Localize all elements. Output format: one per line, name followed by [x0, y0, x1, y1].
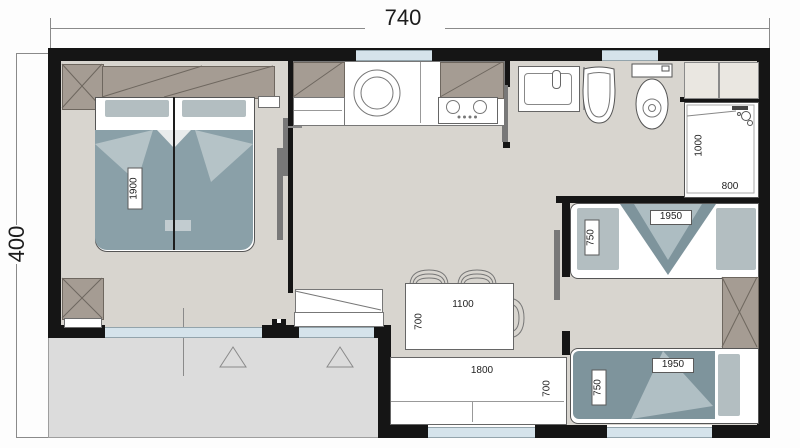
sliding-door-bedroom-kids — [554, 230, 560, 300]
bedroom-master-window — [105, 327, 262, 338]
bedroom-kids-window — [607, 427, 712, 438]
table-length-label: 1100 — [441, 298, 485, 311]
dimension-ext-top-left — [50, 18, 51, 48]
wall-left — [48, 61, 61, 338]
bed-master-pillow-left — [105, 100, 169, 117]
bed-kids-bottom-pillow — [718, 354, 740, 416]
bed-master-pillow-right — [182, 100, 246, 117]
terrace-edge-line — [183, 308, 184, 376]
bidet-icon — [580, 64, 618, 126]
kitchen-window — [356, 50, 432, 61]
bed-kids-top-pillow-right — [716, 208, 756, 270]
wardrobe-hatch-icon — [102, 66, 273, 97]
kitchen-cabinet-fronts — [293, 97, 345, 126]
table-depth-label: 700 — [413, 305, 426, 339]
bed-master-sheet — [165, 220, 191, 231]
counter-divider — [420, 62, 421, 123]
bathroom-cabinet-2 — [719, 62, 759, 99]
hob-burners-icon — [438, 97, 496, 122]
sofa-depth-label: 700 — [541, 372, 554, 406]
cabinet-hatch-icon — [293, 62, 343, 97]
wall-bottom-right — [378, 425, 428, 438]
bed-master-split-line — [173, 97, 175, 250]
dimension-ext-top-right — [769, 18, 770, 48]
bed-kids-top-length-label: 1950 — [650, 210, 692, 225]
overall-height-label: 400 — [4, 220, 28, 268]
bed-kids-bottom-length-label: 1950 — [652, 358, 694, 373]
dimension-line-top-right — [445, 28, 770, 29]
kitchen-jamb-mark — [288, 126, 302, 128]
washbasin-bowl — [524, 73, 572, 105]
shower-depth-label: 1000 — [693, 126, 706, 166]
bed-kids-top-width-label: 750 — [585, 220, 600, 256]
nightstand-master — [258, 96, 280, 108]
wardrobe-step — [64, 318, 102, 328]
overall-width-label: 740 — [363, 5, 443, 31]
sofa-window — [428, 427, 535, 438]
faucet-icon — [552, 70, 561, 89]
bed-master-length-label: 1900 — [128, 168, 143, 210]
dimension-line-left-lower — [16, 264, 17, 438]
floor-plan: 1900 1000 800 — [0, 0, 800, 448]
dimension-line-top-left — [50, 28, 365, 29]
bed-kids-bottom-width-label: 750 — [592, 370, 607, 406]
sofa-seat-line — [391, 401, 564, 402]
sofa-cushion-divider — [472, 402, 473, 422]
kitchen-cabinet-front-line — [294, 110, 342, 111]
sofa-length-label: 1800 — [460, 364, 504, 377]
dimension-ext-left-bottom — [16, 437, 48, 438]
terrace-triangle-marker — [325, 345, 355, 369]
dining-chair-icon — [408, 266, 450, 284]
dining-chair-icon — [456, 266, 498, 284]
wall-bottom-right-2 — [535, 425, 607, 438]
tv-cabinet-diagonal — [295, 289, 381, 312]
bathroom-cabinet-1 — [684, 62, 719, 99]
living-window-left — [299, 327, 374, 338]
cross-icon — [722, 277, 757, 347]
dimension-ext-left-top — [16, 53, 48, 54]
shower-width-label: 800 — [710, 180, 750, 193]
partition-bedroom-kids — [562, 203, 570, 277]
wall-bottom-right-3 — [712, 425, 770, 438]
entry-door-handle-gap — [277, 319, 281, 323]
bathroom-window — [602, 50, 658, 61]
partition-bedroom-kids-jamb — [562, 331, 570, 355]
washing-machine-icon — [352, 68, 402, 118]
tv-cabinet-base — [294, 312, 384, 327]
toilet-icon — [630, 62, 676, 132]
dimension-line-left-upper — [16, 53, 17, 225]
partition-bathroom-jamb-cap — [503, 142, 510, 148]
cross-icon — [62, 278, 102, 318]
hood-hatch-icon — [440, 62, 502, 97]
terrace-triangle-marker — [218, 345, 248, 369]
